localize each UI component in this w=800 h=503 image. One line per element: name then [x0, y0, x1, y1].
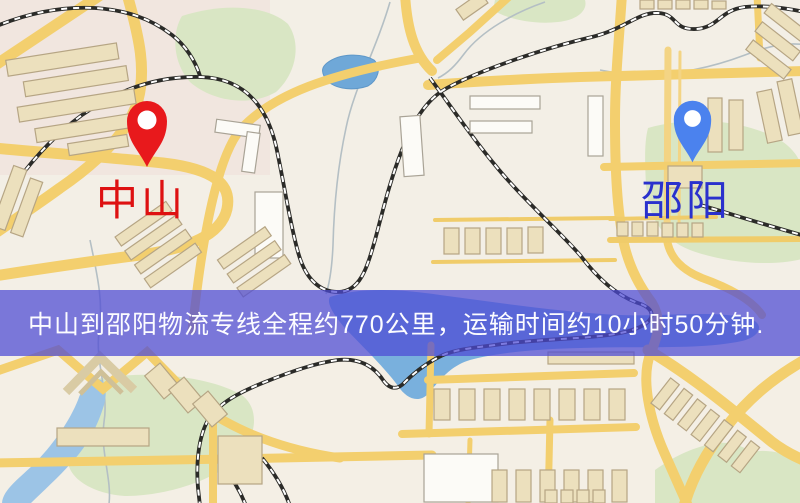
destination-city-label: 邵阳 [641, 180, 731, 222]
origin-city-label: 中山 [96, 180, 186, 222]
origin-pin-icon [123, 97, 171, 173]
route-info-text: 中山到邵阳物流专线全程约770公里，运输时间约10小时50分钟. [28, 305, 764, 341]
destination-pin[interactable] [670, 97, 715, 173]
map-view: 中山 邵阳 中山到邵阳物流专线全程约770公里，运输时间约10小时50分钟. [0, 0, 800, 503]
route-info-banner: 中山到邵阳物流专线全程约770公里，运输时间约10小时50分钟. [0, 290, 800, 356]
map-canvas [0, 0, 800, 503]
origin-pin[interactable] [123, 97, 171, 178]
destination-pin-icon [670, 97, 715, 168]
